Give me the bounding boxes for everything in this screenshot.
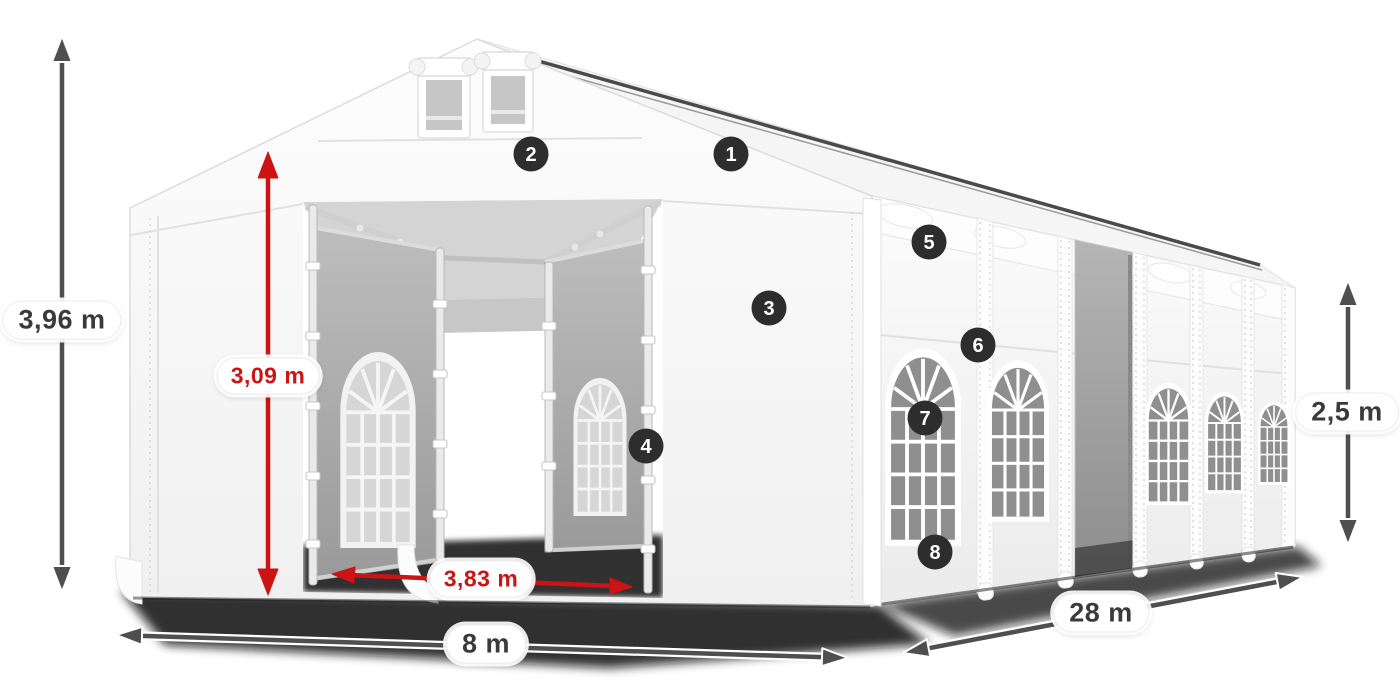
side-door-opening [1075, 240, 1135, 577]
svg-text:4: 4 [640, 436, 652, 458]
side-window-5 [1258, 401, 1290, 484]
door-panel-window [573, 378, 626, 516]
marker-4: 4 [629, 429, 664, 464]
svg-text:8: 8 [929, 542, 940, 564]
svg-text:7: 7 [919, 408, 930, 430]
side-window-3 [1145, 383, 1192, 505]
marker-8: 8 [918, 535, 953, 570]
marker-2: 2 [514, 137, 549, 172]
marker-5: 5 [912, 225, 947, 260]
svg-text:3: 3 [763, 298, 774, 320]
corner-post [863, 198, 881, 606]
tent-illustration: 1 2 3 4 5 6 7 8 [0, 0, 1400, 700]
svg-text:6: 6 [972, 335, 983, 357]
marker-7: 7 [908, 401, 943, 436]
gable-vent-left [409, 58, 478, 138]
svg-text:1: 1 [725, 144, 736, 166]
side-window-4 [1205, 392, 1244, 493]
marker-1: 1 [714, 137, 749, 172]
tent-dimension-diagram: 1 2 3 4 5 6 7 8 3,96 m 3,09 [0, 0, 1400, 700]
dimension-label-total-height: 3,96 m [2, 301, 121, 340]
marker-3: 3 [752, 291, 787, 326]
front-door-panel-right [545, 240, 648, 552]
door-panel-window [340, 352, 415, 548]
dimension-label-entrance-height: 3,09 m [217, 358, 320, 395]
gable-vent-right [474, 52, 541, 132]
dimension-label-side-height: 2,5 m [1295, 393, 1399, 432]
front-entrance-opening [303, 199, 663, 599]
marker-6: 6 [961, 328, 996, 363]
side-window-2 [987, 360, 1049, 521]
svg-text:5: 5 [923, 232, 934, 254]
dimension-label-length: 28 m [1053, 594, 1149, 633]
dimension-label-width: 8 m [446, 625, 526, 664]
side-window-1 [885, 348, 961, 546]
svg-text:2: 2 [525, 144, 536, 166]
dimension-label-entrance-width: 3,83 m [430, 561, 533, 598]
front-door-panel-left [310, 227, 440, 581]
